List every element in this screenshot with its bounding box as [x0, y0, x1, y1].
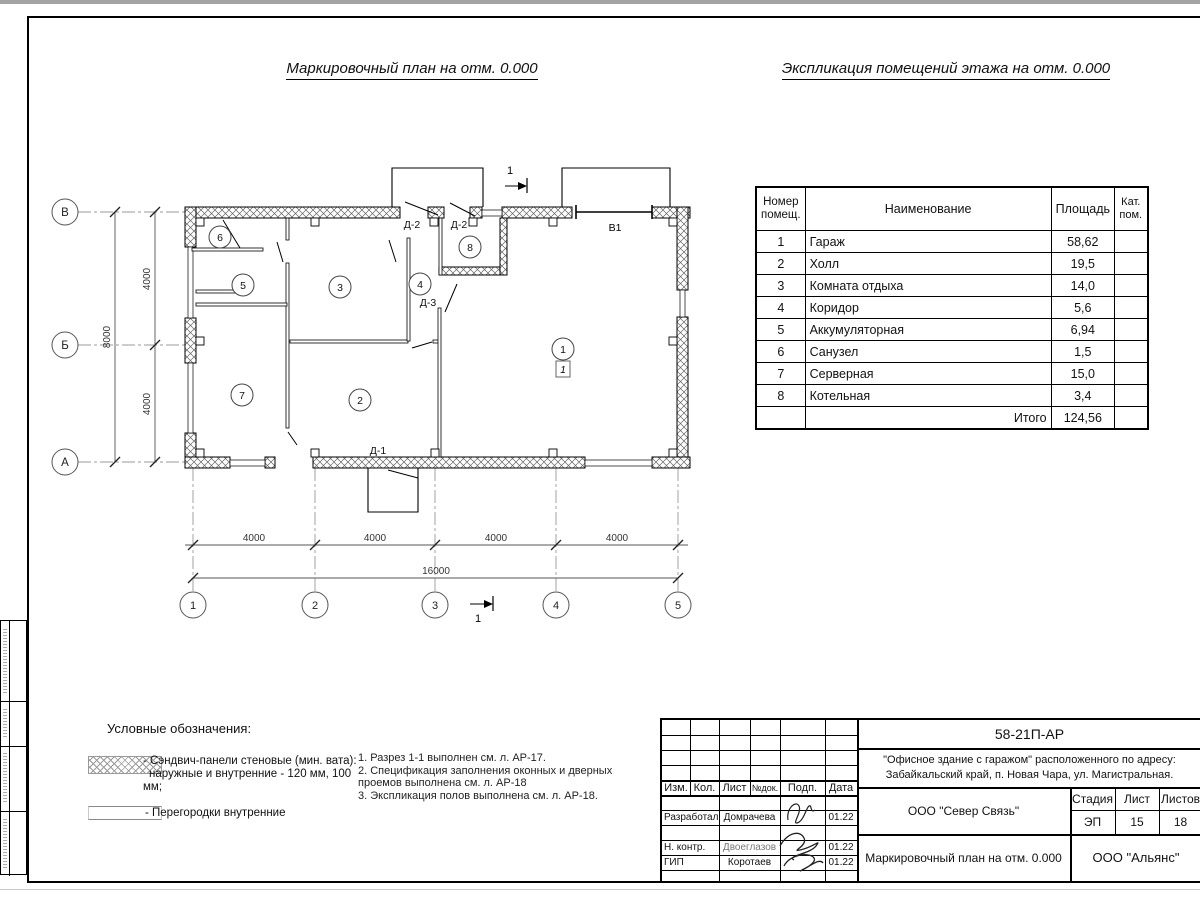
- svg-text:16000: 16000: [422, 566, 450, 577]
- table-row: 4Коридор5,6: [756, 297, 1148, 319]
- interior-partitions: [192, 218, 442, 457]
- date-gip: 01.22: [825, 855, 857, 870]
- svg-text:8: 8: [467, 242, 473, 254]
- exterior-walls: [185, 207, 690, 468]
- sheet-frame-top: [27, 16, 1200, 18]
- svg-text:4000: 4000: [243, 533, 266, 544]
- viewport-edge-top: [0, 0, 1200, 4]
- note-1: 1. Разрез 1-1 выполнен см. л. АР-17.: [358, 752, 648, 765]
- axis-bubbles-columns: 1 2 3 4 5: [180, 592, 691, 618]
- svg-text:3: 3: [337, 282, 343, 294]
- legend-item-partition: - Перегородки внутренние: [145, 807, 365, 820]
- svg-text:4000: 4000: [606, 533, 629, 544]
- svg-text:В: В: [61, 207, 69, 219]
- door-labels: Д-2 Д-2 Д-3 Д-1: [370, 219, 468, 457]
- project-name: "Офисное здание с гаражом" расположенног…: [857, 748, 1200, 787]
- legend-title: Условные обозначения:: [107, 721, 251, 736]
- svg-text:3: 3: [432, 600, 438, 612]
- section-mark-bottom: 1: [470, 596, 493, 625]
- column-marks: [196, 218, 677, 457]
- svg-text:1: 1: [475, 613, 481, 625]
- svg-text:4000: 4000: [142, 392, 153, 415]
- svg-text:Д-3: Д-3: [420, 297, 437, 309]
- note-3: 3. Экспликация полов выполнена см. л. АР…: [358, 790, 648, 803]
- doc-number: 58-21П-АР: [857, 720, 1200, 748]
- gate-b1: [576, 205, 652, 219]
- floor-type-mark: 1: [556, 361, 570, 377]
- svg-text:5: 5: [675, 600, 681, 612]
- garage-gate-bottom: [585, 460, 652, 466]
- drawing-sheet: Маркировочный план на отм. 0.000 Эксплик…: [0, 0, 1200, 900]
- col-kol: Кол.: [690, 780, 719, 795]
- explication-table: Номер помещ. Наименование Площадь Кат. п…: [755, 186, 1149, 430]
- boiler-room-wall-bottom: [439, 267, 507, 275]
- signature-gip: [776, 830, 828, 876]
- col-ndok: №док.: [750, 780, 780, 795]
- svg-text:7: 7: [239, 390, 245, 402]
- svg-text:2: 2: [312, 600, 318, 612]
- name-gip: Коротаев: [719, 855, 780, 870]
- gate-b1-label: В1: [609, 222, 622, 234]
- explication-header-row: Номер помещ. Наименование Площадь Кат. п…: [756, 187, 1148, 231]
- svg-text:1: 1: [507, 165, 513, 177]
- plan-title: Маркировочный план на отм. 0.000: [262, 60, 562, 77]
- table-row: 5Аккумуляторная6,94: [756, 319, 1148, 341]
- dimension-labels-left: 8000 4000 4000: [102, 267, 153, 415]
- company-name: ООО "Альянс": [1070, 834, 1200, 881]
- sheet-frame-left: [27, 16, 29, 883]
- table-row: 6Санузел1,5: [756, 341, 1148, 363]
- svg-text:1: 1: [560, 344, 566, 356]
- total-area: 124,56: [1051, 407, 1114, 430]
- explication-title: Экспликация помещений этажа на отм. 0.00…: [776, 60, 1116, 77]
- svg-text:5: 5: [240, 280, 246, 292]
- col-header-number: Номер помещ.: [756, 187, 805, 231]
- svg-text:Б: Б: [61, 340, 69, 352]
- entry-porch: [368, 468, 418, 512]
- svg-text:Д-2: Д-2: [451, 219, 468, 231]
- stage-label: Стадия: [1070, 787, 1115, 810]
- name-developed: Домрачева: [719, 810, 780, 825]
- svg-text:4000: 4000: [485, 533, 508, 544]
- col-podp: Подп.: [780, 780, 825, 795]
- svg-text:1: 1: [190, 600, 196, 612]
- sheets-label: Листов: [1159, 787, 1200, 810]
- col-header-category: Кат. пом.: [1115, 187, 1148, 231]
- role-developed: Разработал: [664, 810, 719, 825]
- date-developed: 01.22: [825, 810, 857, 825]
- col-izm: Изм.: [662, 780, 690, 795]
- svg-text:Д-2: Д-2: [404, 219, 421, 231]
- stage-value: ЭП: [1070, 810, 1115, 834]
- name-ncontr: Двоеглазов: [719, 840, 780, 855]
- title-block: Изм. Кол. Лист №док. Подп. Дата Разработ…: [660, 718, 1200, 883]
- col-header-area: Площадь: [1051, 187, 1114, 231]
- org-name: ООО "Север Связь": [857, 787, 1070, 834]
- svg-text:8000: 8000: [102, 325, 113, 348]
- svg-text:4000: 4000: [142, 267, 153, 290]
- svg-text:4: 4: [553, 600, 559, 612]
- sheet-edge-bottom: [0, 889, 1200, 890]
- sheet-label: Лист: [1115, 787, 1159, 810]
- note-2: 2. Спецификация заполнения оконных и две…: [358, 765, 648, 778]
- col-header-name: Наименование: [805, 187, 1051, 231]
- svg-text:4000: 4000: [364, 533, 387, 544]
- section-mark-top: 1: [505, 165, 527, 193]
- sheet-number: 15: [1115, 810, 1159, 834]
- left-attachment-stamp: [0, 620, 27, 875]
- svg-text:6: 6: [217, 232, 223, 244]
- table-row: 3Комната отдыха14,0: [756, 275, 1148, 297]
- legend-item-sandwich: - Сэндвич-панели стеновые (мин. вата): н…: [143, 755, 373, 794]
- table-total-row: Итого 124,56: [756, 407, 1148, 430]
- total-label: Итого: [805, 407, 1051, 430]
- notes: 1. Разрез 1-1 выполнен см. л. АР-17. 2. …: [358, 752, 648, 802]
- sheet-title: Маркировочный план на отм. 0.000: [857, 834, 1070, 881]
- svg-text:2: 2: [357, 395, 363, 407]
- role-ncontr: Н. контр.: [664, 840, 719, 855]
- room-number-bubbles: 1 2 3 4 5 6 7 8: [209, 226, 574, 411]
- table-row: 7Серверная15,0: [756, 363, 1148, 385]
- dimension-labels-bottom: 4000 4000 4000 4000 16000: [243, 533, 629, 577]
- role-gip: ГИП: [664, 855, 719, 870]
- date-ncontr: 01.22: [825, 840, 857, 855]
- dimension-lines-left: [115, 212, 155, 462]
- table-row: 1Гараж58,62: [756, 231, 1148, 253]
- svg-text:Д-1: Д-1: [370, 445, 387, 457]
- col-data: Дата: [825, 780, 857, 795]
- boiler-room-wall-right: [500, 218, 507, 275]
- axis-bubbles-rows: В Б А: [52, 199, 78, 475]
- col-list: Лист: [719, 780, 750, 795]
- sheets-total: 18: [1159, 810, 1200, 834]
- table-row: 8Котельная3,4: [756, 385, 1148, 407]
- floor-plan: В1 1 1 4000 4000 4000 4: [40, 140, 720, 640]
- table-row: 2Холл19,5: [756, 253, 1148, 275]
- svg-text:4: 4: [417, 279, 423, 291]
- dimension-ticks-left: [110, 207, 160, 467]
- svg-text:1: 1: [560, 365, 566, 376]
- signature-developed: [782, 798, 824, 828]
- svg-text:А: А: [61, 457, 69, 469]
- note-2b: проемов выполнена см. л. АР-18: [358, 777, 648, 790]
